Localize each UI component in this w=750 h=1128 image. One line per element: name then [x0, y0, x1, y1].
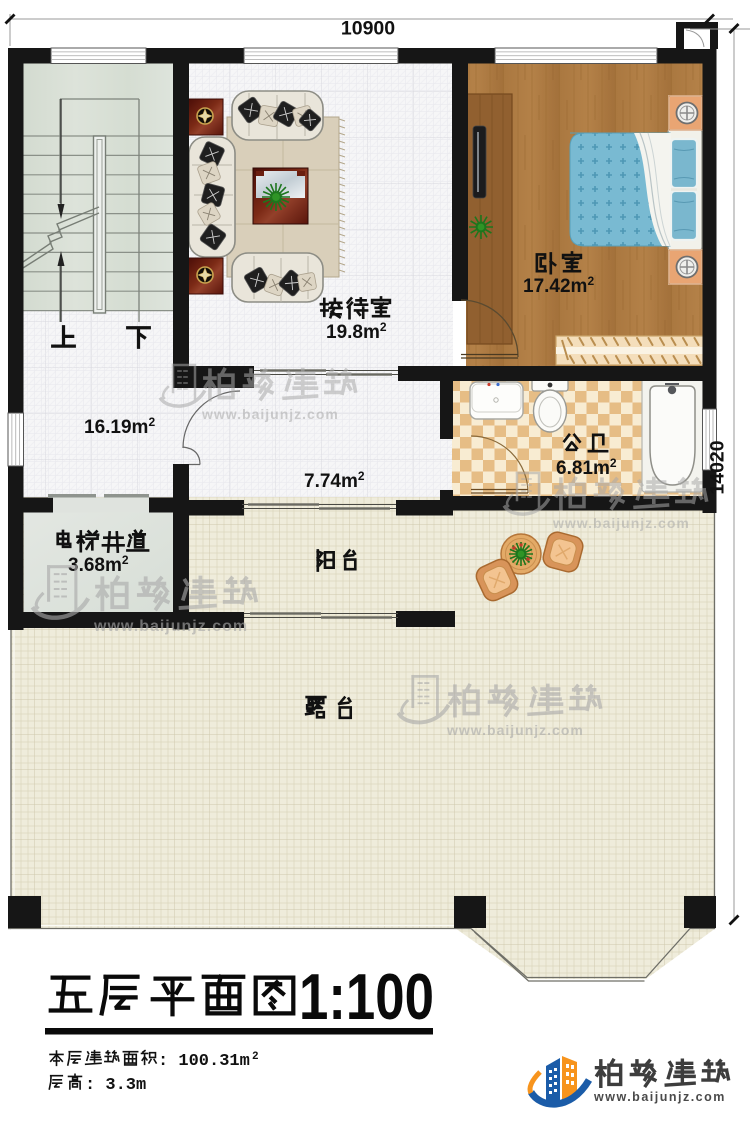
svg-text:www.baijunjz.com: www.baijunjz.com [593, 1090, 726, 1104]
svg-text:2: 2 [252, 1051, 259, 1063]
svg-text:7.74m2: 7.74m2 [304, 469, 365, 492]
svg-text:1:100: 1:100 [299, 960, 434, 1033]
svg-text:10900: 10900 [341, 18, 395, 40]
svg-text:6.81m2: 6.81m2 [556, 456, 617, 479]
svg-text:19.8m2: 19.8m2 [326, 320, 387, 343]
svg-text:www.baijunjz.com: www.baijunjz.com [201, 406, 339, 422]
svg-text:www.baijunjz.com: www.baijunjz.com [552, 515, 690, 531]
svg-text:16.19m2: 16.19m2 [84, 415, 155, 438]
svg-text:www.baijunjz.com: www.baijunjz.com [446, 722, 584, 738]
svg-text:17.42m2: 17.42m2 [523, 274, 594, 297]
svg-text:: 3.3m: : 3.3m [85, 1076, 146, 1095]
svg-text:: 100.31m: : 100.31m [158, 1052, 250, 1071]
svg-text:14020: 14020 [707, 440, 729, 494]
svg-text:www.baijunjz.com: www.baijunjz.com [93, 618, 248, 635]
